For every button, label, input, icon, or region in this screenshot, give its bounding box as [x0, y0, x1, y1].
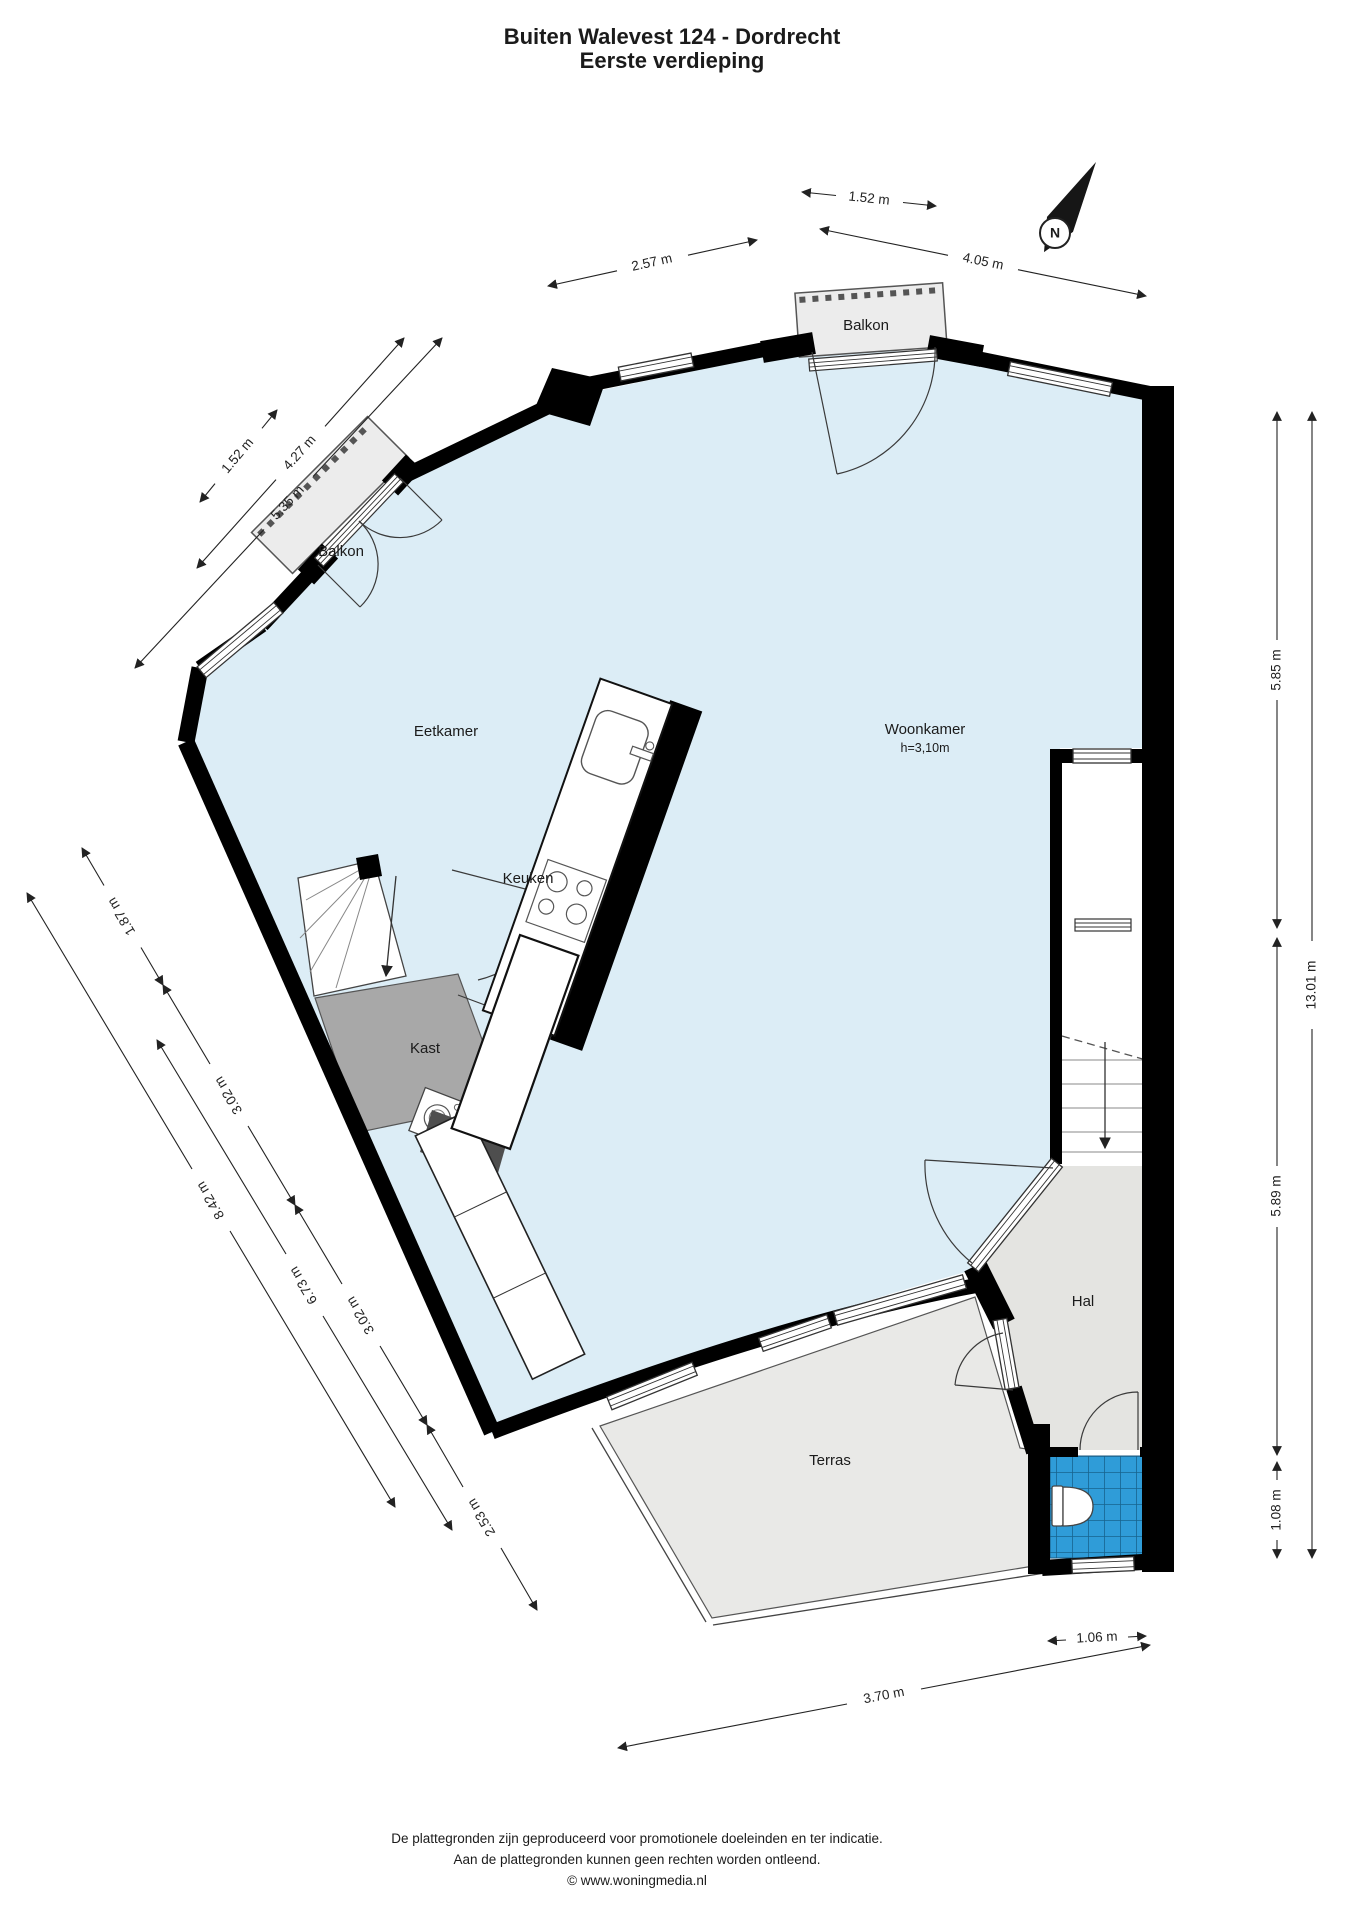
room-label-balkon-top: Balkon: [843, 317, 889, 334]
dim-left-partial: 6.73 m: [286, 1264, 320, 1307]
room-label-keuken: Keuken: [503, 870, 554, 887]
compass-needle: [1031, 155, 1109, 260]
floor-plan: Eetkamer Keuken Woonkamer h=3,10m Kast H…: [0, 0, 1358, 1920]
dim-right-toilet: 1.08 m: [1269, 1489, 1284, 1530]
dim-top-right: 4.05 m: [961, 250, 1004, 273]
dim-right-total: 13.01 m: [1304, 961, 1319, 1010]
window: [1073, 749, 1131, 763]
stair-wall-block: [356, 854, 382, 880]
dim-right-lower: 5.89 m: [1269, 1175, 1284, 1216]
room-label-kast: Kast: [410, 1040, 441, 1057]
dim-left-total: 8.42 m: [193, 1179, 227, 1222]
footer-disclaimer-line1: De plattegronden zijn geproduceerd voor …: [391, 1831, 883, 1846]
dim-top-balcony: 1.52 m: [848, 188, 891, 207]
dim-left-seg1: 1.87 m: [104, 895, 138, 938]
floorplan-page: Eetkamer Keuken Woonkamer h=3,10m Kast H…: [0, 0, 1358, 1920]
dim-right-upper: 5.85 m: [1269, 649, 1284, 690]
room-label-balkon-left: Balkon: [318, 543, 364, 560]
compass-north-label: N: [1050, 225, 1060, 241]
room-label-woonkamer: Woonkamer: [885, 721, 966, 738]
room-label-woonkamer-height: h=3,10m: [901, 741, 950, 755]
window: [1075, 919, 1131, 931]
dim-left-seg3: 3.02 m: [343, 1294, 377, 1337]
dim-left-seg2: 3.02 m: [211, 1074, 245, 1117]
dim-terrace-width: 3.70 m: [862, 1684, 905, 1707]
dim-left-seg4: 2.53 m: [464, 1496, 498, 1539]
footer-copyright: © www.woningmedia.nl: [567, 1873, 707, 1888]
room-label-eetkamer: Eetkamer: [414, 723, 478, 740]
window: [1072, 1557, 1135, 1574]
compass: N: [1031, 155, 1109, 260]
dim-upper-left-balcony: 1.52 m: [218, 435, 256, 476]
page-title-line1: Buiten Walevest 124 - Dordrecht: [504, 24, 841, 49]
page-title-line2: Eerste verdieping: [580, 48, 765, 73]
stairwell-floor: [1060, 756, 1146, 1164]
dim-toilet-width: 1.06 m: [1076, 1628, 1118, 1645]
dim-top-left: 2.57 m: [630, 250, 674, 274]
room-label-hal: Hal: [1072, 1293, 1095, 1310]
room-label-terras: Terras: [809, 1452, 851, 1469]
toilet-fixture: [1052, 1486, 1093, 1526]
footer-disclaimer-line2: Aan de plattegronden kunnen geen rechten…: [453, 1852, 820, 1867]
dim-upper-left-wall: 4.27 m: [280, 432, 319, 473]
